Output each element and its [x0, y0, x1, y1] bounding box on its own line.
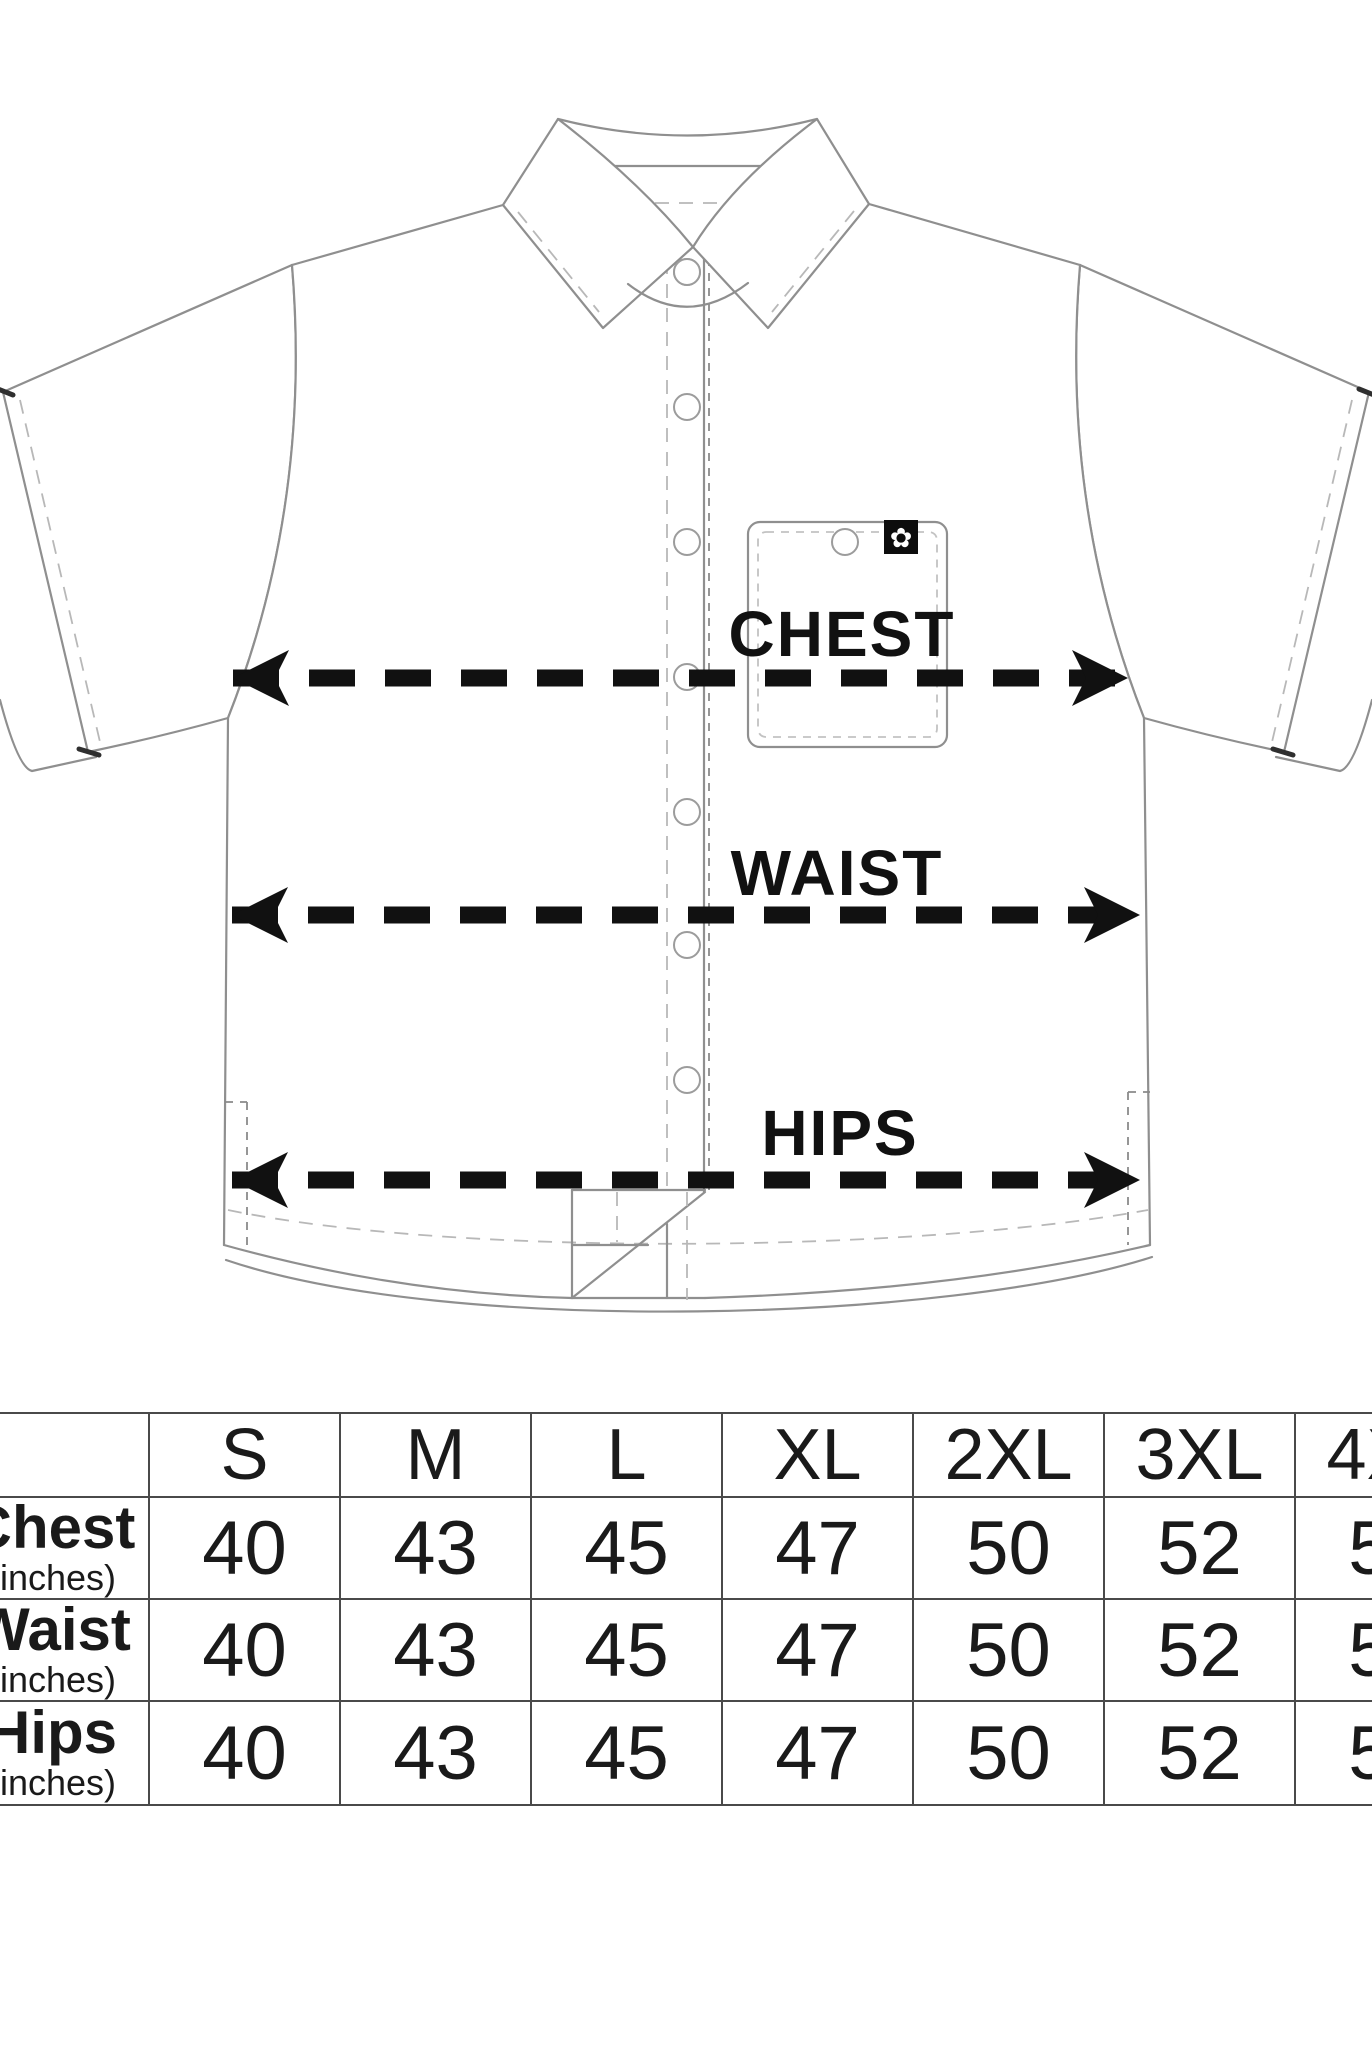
size-value: 55 — [1348, 1506, 1372, 1591]
size-value-cell: 43 — [340, 1701, 531, 1805]
size-value-cell: 40 — [149, 1701, 340, 1805]
table-corner-cell — [0, 1413, 149, 1497]
size-value: 40 — [202, 1608, 287, 1693]
size-value-cell: 47 — [722, 1701, 913, 1805]
chest-label: CHEST — [729, 598, 956, 670]
shirt-body — [224, 204, 1152, 1312]
row-label-unit: (inches) — [0, 1558, 148, 1598]
size-value: 45 — [584, 1711, 669, 1796]
rose-logo-patch: ✿ — [884, 520, 918, 554]
size-col-header-2xl: 2XL — [913, 1413, 1104, 1497]
row-label-cell: Hips(inches) — [0, 1701, 149, 1805]
size-value-cell: 45 — [531, 1497, 722, 1599]
size-table: SMLXL2XL3XL4XLChest(inches)4043454750525… — [0, 1412, 1372, 1806]
size-col-header-4xl: 4XL — [1295, 1413, 1372, 1497]
rose-logo-icon: ✿ — [890, 523, 913, 554]
row-label-unit: (inches) — [0, 1763, 148, 1803]
size-value: 52 — [1157, 1608, 1242, 1693]
size-col-header-xl: XL — [722, 1413, 913, 1497]
table-row-chest: Chest(inches)40434547505255 — [0, 1497, 1372, 1599]
size-value-cell: 52 — [1104, 1599, 1295, 1701]
size-col-header-s: S — [149, 1413, 340, 1497]
size-value-cell: 52 — [1104, 1497, 1295, 1599]
size-value-cell: 55 — [1295, 1497, 1372, 1599]
row-label-cell: Chest(inches) — [0, 1497, 149, 1599]
size-value: 45 — [584, 1506, 669, 1591]
size-value-cell: 50 — [913, 1599, 1104, 1701]
size-value-cell: 45 — [531, 1599, 722, 1701]
table-row-hips: Hips(inches)40434547505255 — [0, 1701, 1372, 1805]
size-col-header-label: 2XL — [944, 1415, 1072, 1495]
neck-button — [674, 259, 700, 285]
size-value-cell: 52 — [1104, 1701, 1295, 1805]
size-col-header-label: L — [606, 1415, 646, 1495]
size-value-cell: 47 — [722, 1497, 913, 1599]
row-label-unit: (inches) — [0, 1660, 148, 1700]
size-value: 55 — [1348, 1608, 1372, 1693]
size-value: 43 — [393, 1711, 478, 1796]
size-value: 43 — [393, 1506, 478, 1591]
size-col-header-label: 4XL — [1326, 1415, 1372, 1495]
size-col-header-label: 3XL — [1135, 1415, 1263, 1495]
size-col-header-label: XL — [773, 1415, 861, 1495]
size-value: 40 — [202, 1506, 287, 1591]
waist-label: WAIST — [731, 837, 944, 909]
size-col-header-label: M — [406, 1415, 466, 1495]
size-col-header-label: S — [220, 1415, 268, 1495]
size-value-cell: 50 — [913, 1701, 1104, 1805]
row-label: Hips — [0, 1703, 148, 1763]
hips-label: HIPS — [761, 1097, 918, 1169]
size-value: 50 — [966, 1506, 1051, 1591]
size-value-cell: 43 — [340, 1599, 531, 1701]
size-value: 50 — [966, 1711, 1051, 1796]
size-col-header-3xl: 3XL — [1104, 1413, 1295, 1497]
size-value-cell: 50 — [913, 1497, 1104, 1599]
size-value-cell: 55 — [1295, 1701, 1372, 1805]
size-value: 47 — [775, 1506, 860, 1591]
shirt-diagram: ✿ CHEST WAIST HIPS — [0, 0, 1372, 1372]
size-value-cell: 40 — [149, 1599, 340, 1701]
size-value: 47 — [775, 1608, 860, 1693]
size-value: 40 — [202, 1711, 287, 1796]
row-label: Chest — [0, 1498, 148, 1558]
size-chart-page: ✿ CHEST WAIST HIPS SMLXL2XL3XL4XLChest(i… — [0, 0, 1372, 2048]
row-label: Waist — [0, 1600, 148, 1660]
row-label-cell: Waist(inches) — [0, 1599, 149, 1701]
size-value: 43 — [393, 1608, 478, 1693]
size-value-cell: 47 — [722, 1599, 913, 1701]
table-row-waist: Waist(inches)40434547505255 — [0, 1599, 1372, 1701]
size-value-cell: 40 — [149, 1497, 340, 1599]
size-value-cell: 43 — [340, 1497, 531, 1599]
size-value: 45 — [584, 1608, 669, 1693]
size-value: 50 — [966, 1608, 1051, 1693]
size-col-header-l: L — [531, 1413, 722, 1497]
size-value: 55 — [1348, 1711, 1372, 1796]
size-value: 52 — [1157, 1506, 1242, 1591]
size-value-cell: 55 — [1295, 1599, 1372, 1701]
size-value-cell: 45 — [531, 1701, 722, 1805]
size-value: 47 — [775, 1711, 860, 1796]
pocket-button — [832, 529, 858, 555]
size-col-header-m: M — [340, 1413, 531, 1497]
size-value: 52 — [1157, 1711, 1242, 1796]
